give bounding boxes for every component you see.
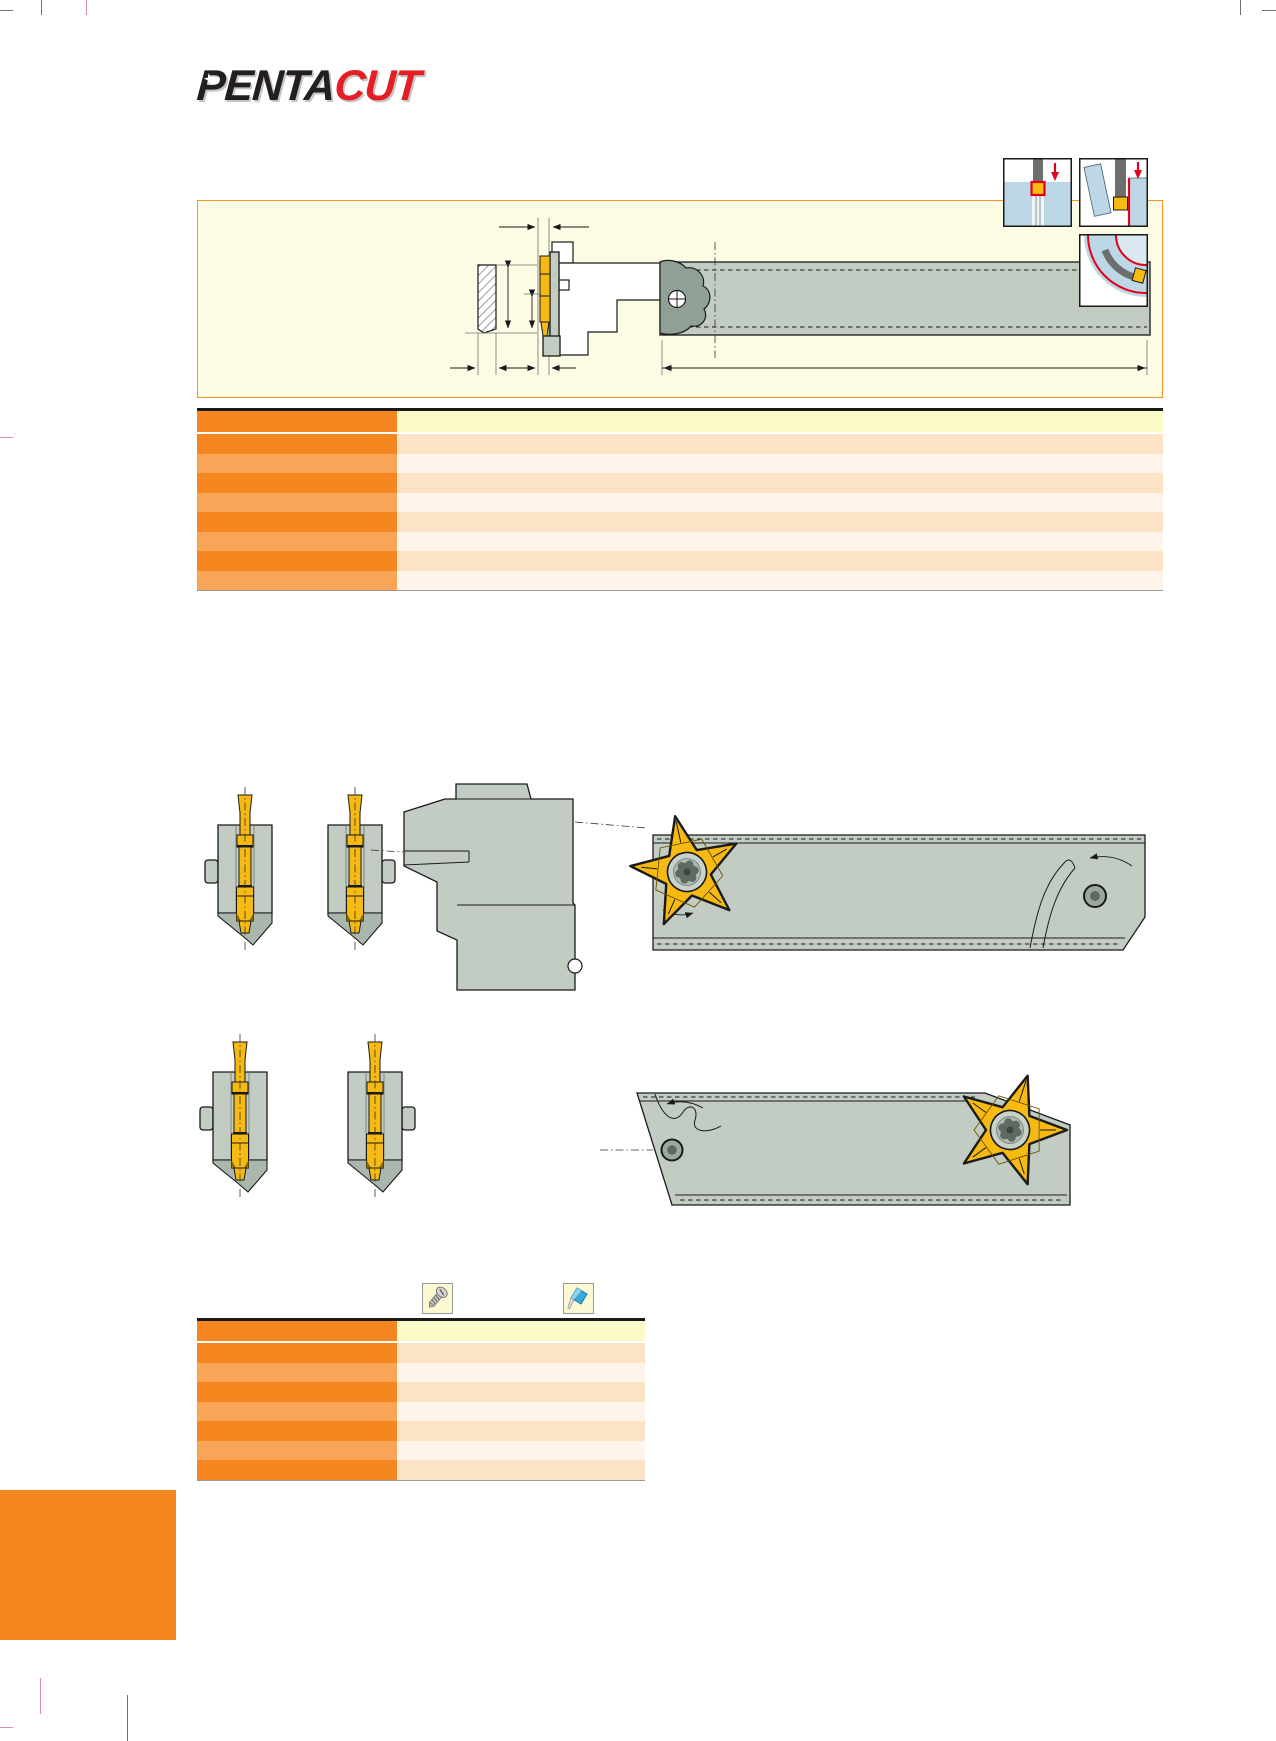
table-body <box>197 434 1163 590</box>
table-row <box>197 1460 645 1480</box>
blade-insert-left <box>622 805 1145 950</box>
crop-mark <box>41 0 42 15</box>
crop-mark <box>40 1678 41 1714</box>
clamp-nub <box>382 860 395 883</box>
cut-off-part <box>1084 164 1111 216</box>
table-row <box>197 473 1163 493</box>
dimension-drawing <box>197 200 1163 398</box>
logo-text-accent: CUT <box>333 62 422 110</box>
diagram-external-grooving <box>1003 158 1072 227</box>
table-body <box>197 1343 645 1480</box>
table-header-row <box>197 1321 645 1343</box>
table-row <box>197 532 1163 552</box>
diagram-parting <box>1079 158 1148 227</box>
insert-strip <box>540 256 550 322</box>
table-row <box>197 1363 645 1383</box>
blade-cross-section <box>205 787 272 951</box>
table-row <box>197 493 1163 513</box>
crop-mark <box>0 437 13 438</box>
blade-cross-section <box>328 787 395 951</box>
pentacut-logo: PENTACUT <box>195 62 421 110</box>
screw-icon-box <box>422 1283 453 1314</box>
table-row <box>197 434 1163 454</box>
table-header-row <box>197 411 1163 434</box>
table-row <box>197 1382 645 1402</box>
table-row <box>197 1402 645 1422</box>
blade-bar <box>660 262 1150 335</box>
table-row <box>197 512 1163 532</box>
blade-insert-right <box>600 1059 1079 1205</box>
marker-pen-icon <box>564 1284 593 1313</box>
page-corner-tab <box>0 1490 176 1640</box>
insert <box>1114 197 1128 210</box>
table-row <box>197 454 1163 474</box>
workpiece-wall <box>478 265 496 333</box>
table-row <box>197 1441 645 1461</box>
crop-mark <box>86 0 87 15</box>
clamp-nub <box>200 1107 213 1130</box>
table-row <box>197 571 1163 591</box>
tool-shank <box>1115 160 1126 198</box>
tool-drawings <box>185 770 1165 1215</box>
table-row <box>197 1421 645 1441</box>
side-view <box>450 218 667 375</box>
crop-mark <box>1240 0 1241 15</box>
crop-mark <box>0 1727 13 1728</box>
blade-cross-section <box>348 1034 415 1198</box>
dimensions-table <box>197 408 1163 591</box>
catalog-page: PENTACUT ★ <box>0 0 1276 1741</box>
diagram-internal-profiling <box>1079 234 1148 307</box>
table-row <box>197 1343 645 1363</box>
clamp-nub <box>402 1107 415 1130</box>
table-row <box>197 551 1163 571</box>
crop-mark <box>127 1695 128 1741</box>
tool-shank <box>1033 160 1043 184</box>
blade-cross-section <box>200 1034 267 1198</box>
front-view <box>660 242 1150 375</box>
clamp-nub <box>205 860 218 883</box>
holder-body <box>550 263 667 355</box>
insert <box>1032 182 1045 195</box>
tool-block <box>371 784 647 990</box>
crop-mark <box>0 10 13 11</box>
crop-mark <box>1262 10 1276 11</box>
marker-icon-box <box>563 1283 594 1314</box>
clamping-screw-icon <box>423 1284 452 1313</box>
spare-parts-table <box>197 1318 645 1481</box>
